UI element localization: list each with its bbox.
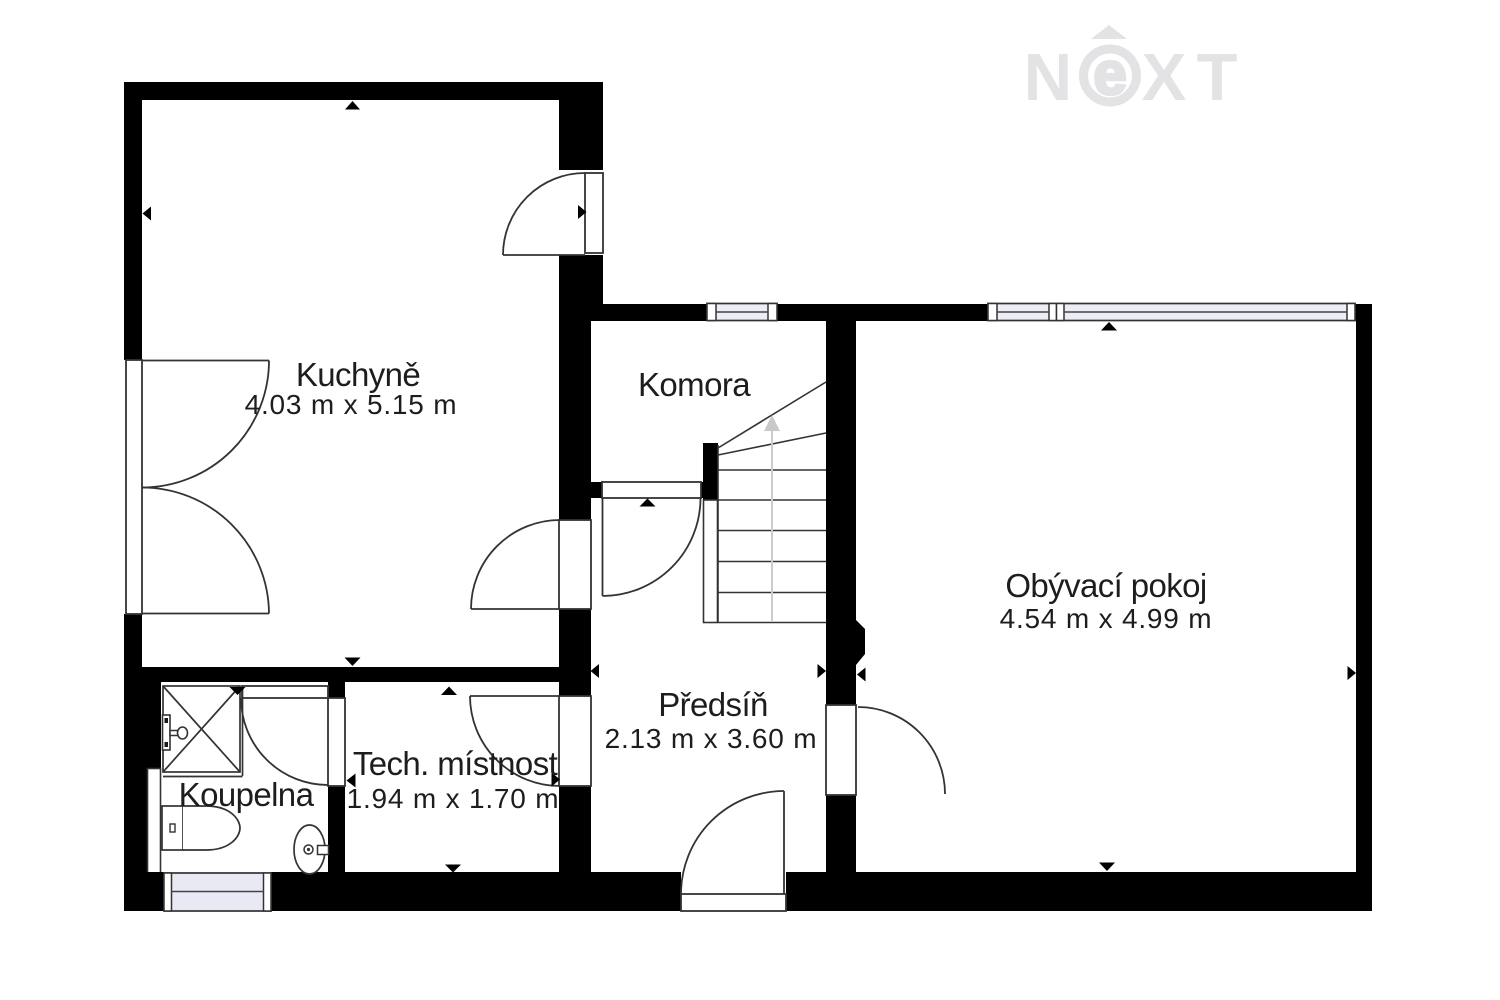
svg-text:Kuchyně: Kuchyně [296, 356, 420, 393]
svg-text:Koupelna: Koupelna [179, 776, 315, 813]
svg-text:4.54 m x 4.99 m: 4.54 m x 4.99 m [1000, 603, 1213, 634]
svg-text:e: e [1093, 40, 1126, 107]
svg-text:Předsíň: Předsíň [658, 686, 768, 723]
svg-text:Komora: Komora [638, 366, 751, 403]
svg-text:Obývací pokoj: Obývací pokoj [1005, 567, 1206, 604]
svg-text:Tech. místnost: Tech. místnost [353, 745, 558, 782]
svg-text:2.13 m x 3.60 m: 2.13 m x 3.60 m [605, 723, 818, 754]
svg-text:T: T [1197, 40, 1238, 115]
svg-text:1.94 m x 1.70 m: 1.94 m x 1.70 m [347, 783, 560, 814]
svg-text:N: N [1024, 40, 1072, 115]
svg-text:X: X [1142, 40, 1187, 115]
svg-text:4.03 m x 5.15 m: 4.03 m x 5.15 m [245, 389, 458, 420]
